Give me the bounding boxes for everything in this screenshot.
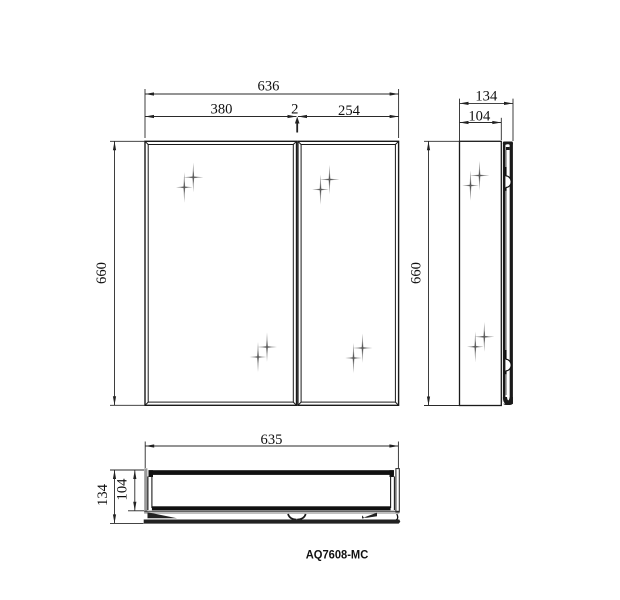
svg-text:660: 660 <box>94 262 110 284</box>
svg-text:2: 2 <box>291 102 298 118</box>
svg-text:660: 660 <box>409 262 425 284</box>
svg-text:635: 635 <box>261 432 283 448</box>
svg-text:134: 134 <box>95 483 111 506</box>
svg-text:380: 380 <box>211 102 233 118</box>
svg-text:636: 636 <box>258 79 280 95</box>
svg-text:AQ7608-MC: AQ7608-MC <box>306 548 369 562</box>
svg-text:104: 104 <box>468 108 491 124</box>
svg-text:254: 254 <box>338 103 361 119</box>
svg-text:134: 134 <box>475 89 498 105</box>
svg-text:104: 104 <box>115 478 131 501</box>
